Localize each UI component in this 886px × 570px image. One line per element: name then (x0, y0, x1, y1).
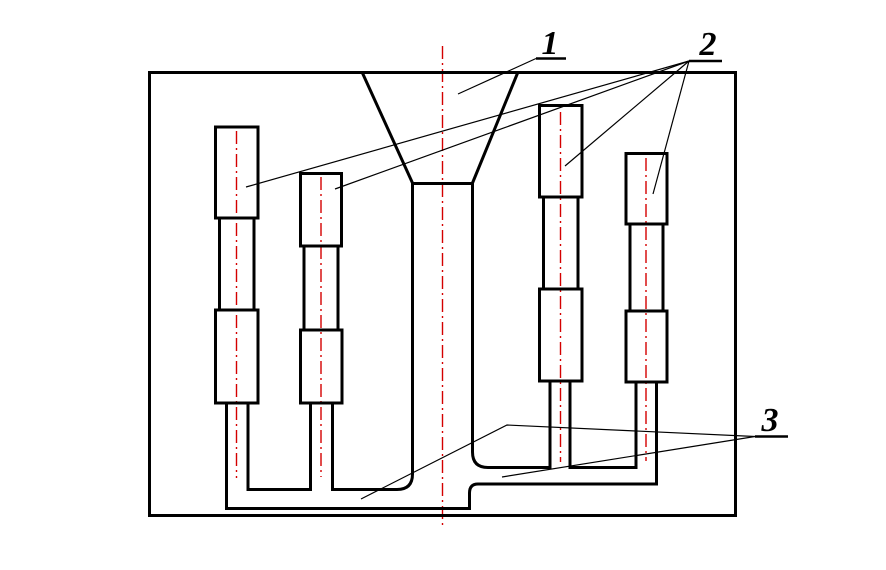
drawing-canvas: 1 2 3 (0, 0, 886, 570)
sprue-left-wall (333, 183, 413, 490)
label-1: 1 (542, 25, 559, 62)
label3-leader-to-left-runner (361, 425, 755, 499)
label2-leader-to-column2 (335, 61, 689, 189)
label3-leader-to-right-runner (502, 437, 755, 478)
runner-bottom-wall (226, 484, 657, 509)
leader-lines-group (246, 59, 755, 500)
centerlines-group (237, 46, 647, 525)
label2-leader-to-column4 (653, 61, 689, 194)
column1-stem (227, 403, 249, 510)
label-2: 2 (699, 26, 717, 63)
label-3: 3 (761, 402, 779, 439)
label1-leader-line (458, 59, 536, 95)
label2-leader-to-column1 (246, 61, 689, 187)
technical-drawing: 1 2 3 (0, 0, 886, 570)
pouring-funnel (362, 72, 518, 184)
label2-leader-to-column3 (565, 61, 689, 166)
